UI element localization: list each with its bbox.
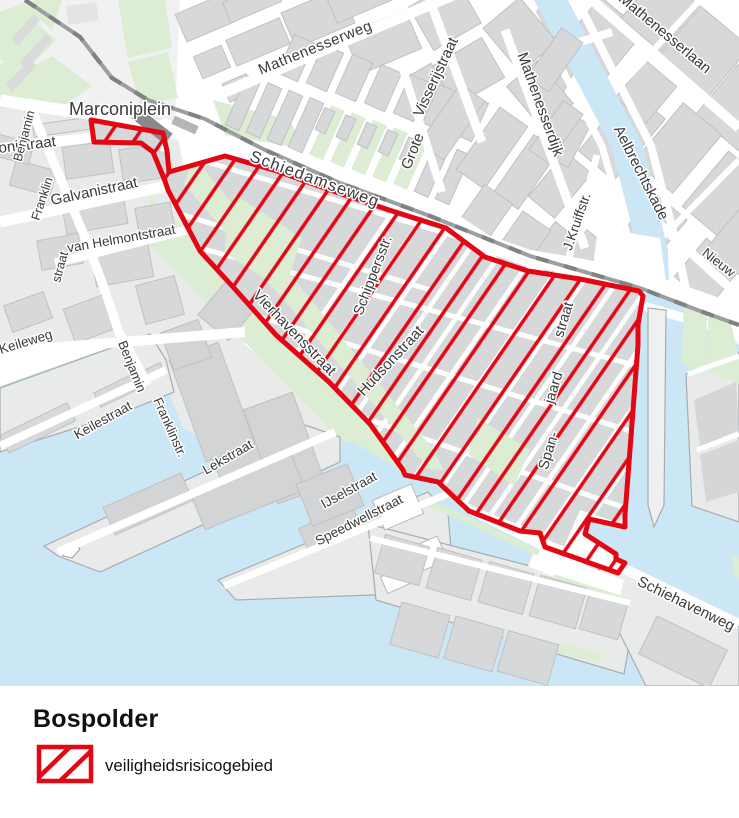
svg-text:veiligheidsrisicogebied: veiligheidsrisicogebied: [105, 756, 273, 775]
svg-text:Marconiplein: Marconiplein: [69, 99, 171, 119]
svg-text:Bospolder: Bospolder: [33, 705, 158, 733]
